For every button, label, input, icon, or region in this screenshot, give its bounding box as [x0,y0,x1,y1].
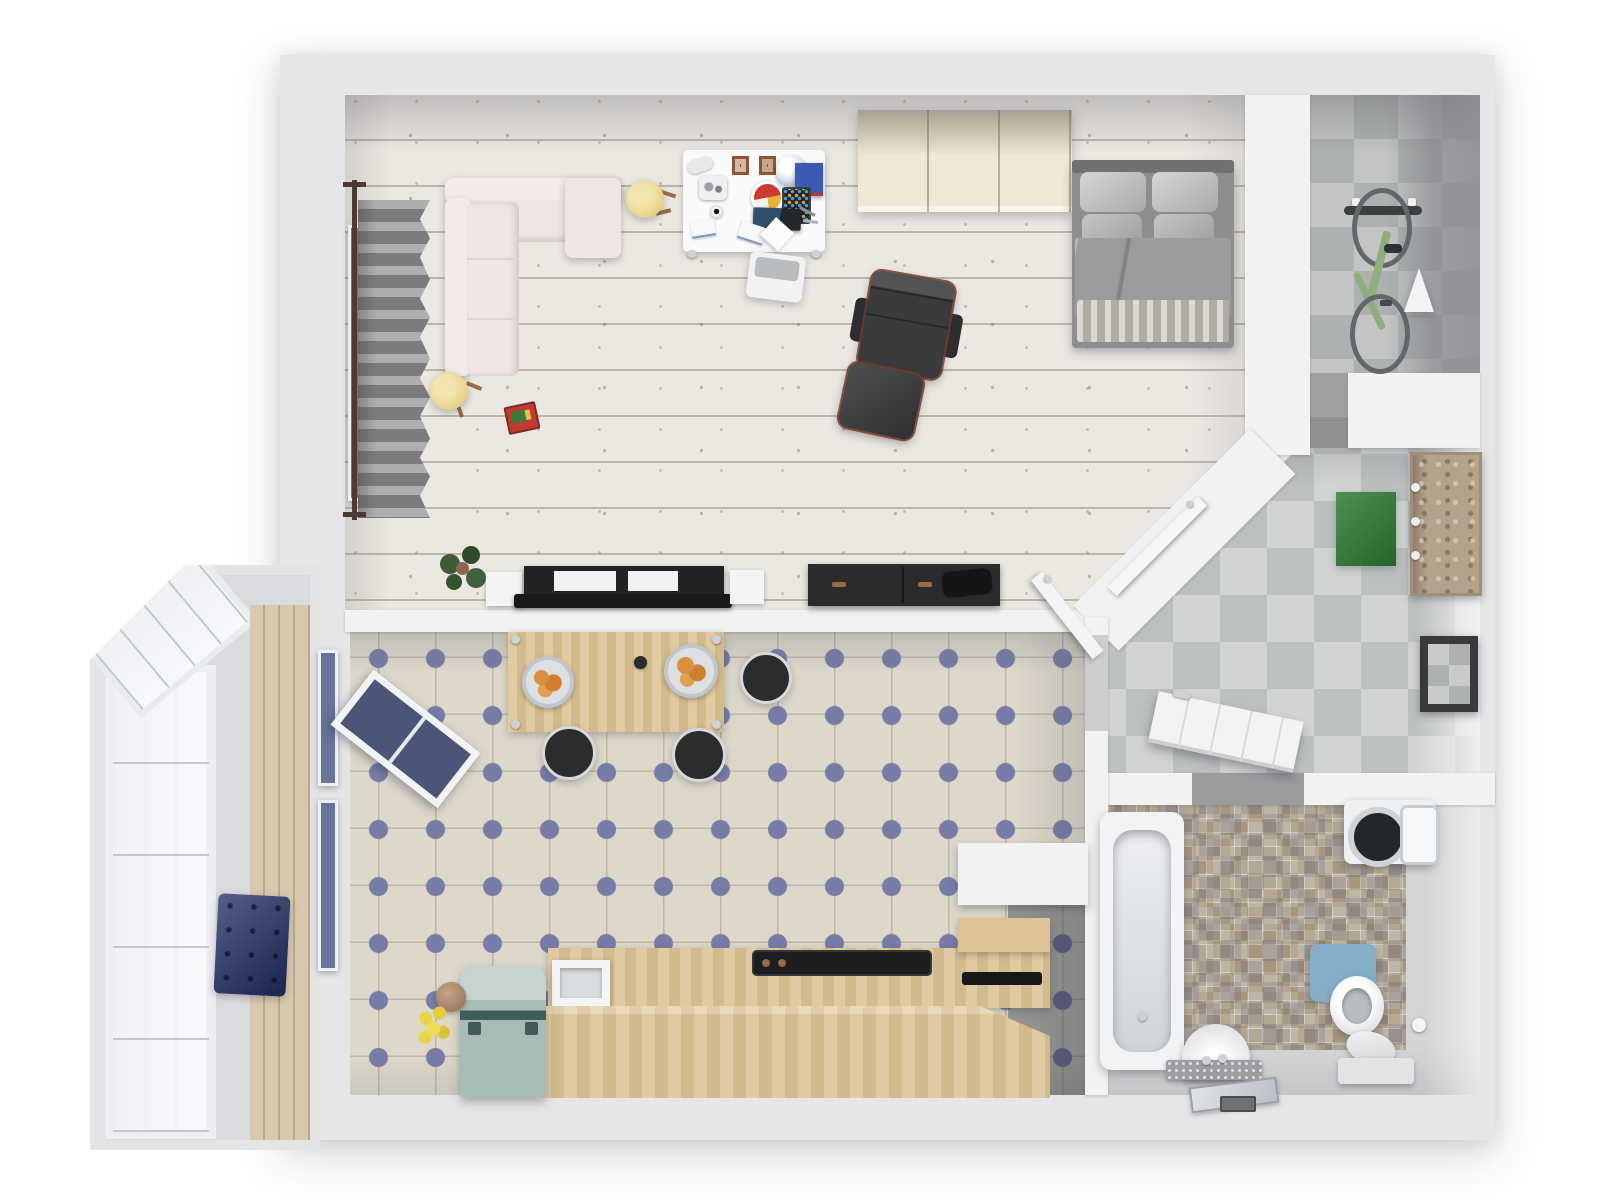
sofa-seam [515,202,517,242]
pedestal-sink [1178,1024,1278,1108]
curtain-rod [352,180,357,520]
dresser [808,564,1000,606]
bike-pedal [1380,300,1392,306]
desk-chair-seat [754,256,800,281]
speaker [730,570,764,604]
flower-vase [412,1000,458,1052]
wall-living-alcove [1245,95,1310,455]
table-leg [712,720,721,729]
dresser-handle [918,582,932,587]
sofa-seam [467,258,519,260]
double-bed [1072,160,1234,350]
sketch-paper [690,218,716,239]
balcony [90,565,320,1150]
coat-hook [1411,517,1420,526]
bed-pillow [1080,172,1146,212]
sofa-seam [467,318,519,320]
hall-mirror [1420,636,1478,712]
mug [710,205,723,218]
tray-item [1220,1096,1256,1112]
photo-frame [732,156,749,175]
curtain-rod-finial-bottom [343,512,366,517]
window-mullion [388,717,426,764]
tv-screen [514,594,732,608]
bathroom-doorway-gap [1192,773,1304,805]
counter-slot [962,972,1042,985]
desk-leg [811,250,821,258]
kitchen-island [538,1006,1050,1098]
photo-frame [759,156,776,175]
floor-plan-stage [0,0,1600,1200]
bed-pillow [1152,172,1218,212]
salt-shaker [634,656,647,669]
doormat [1336,492,1396,566]
corner-sofa [445,178,621,376]
plant-pot [456,562,469,575]
toilet-paper-holder [1412,1018,1426,1032]
bike-wall-hook [1408,198,1416,206]
tv-drawer [628,571,678,591]
balcony-wood-wall [250,605,310,1140]
coat-rack [1410,452,1482,596]
table-leg [511,635,520,644]
potted-plant [440,546,486,592]
sofa-seat-vertical [467,202,519,376]
game-box-inner [524,409,531,420]
washer-lid [1400,805,1439,865]
fruit-bowl [522,656,574,708]
balcony-window-wall [106,665,216,1139]
table-leg [511,720,520,729]
table-leg [712,635,721,644]
camera-icon [699,176,727,200]
dresser-handle [832,582,846,587]
desk-lamp-icon [685,154,714,175]
stool [740,652,792,704]
bike-saddle [1384,244,1402,253]
wardrobe [858,110,1072,212]
desk [683,150,825,252]
dresser-seam [902,567,904,603]
curtain-rod-finial-top [343,182,366,187]
sink-basin [560,968,602,998]
cooktop-knob [778,959,786,967]
pendant-lamp [1404,268,1434,312]
washer-door [1348,807,1408,867]
plant-leaf [446,574,462,590]
fridge-hinge [525,1022,538,1035]
desk-chair [745,251,806,303]
fridge-hinge [468,1022,481,1035]
pouf [430,372,468,410]
wall-living-kitchen [345,610,1108,632]
sink-tap [1218,1054,1227,1063]
counter-bar-return [958,918,1050,952]
dresser-item [941,567,993,598]
sink-ledge [1166,1060,1262,1080]
tv-drawer [554,571,616,591]
cooktop [752,950,932,976]
stool [672,728,726,782]
toilet [1326,968,1418,1088]
kitchen-wall-window-lower [318,800,338,971]
bike-rear-wheel [1350,294,1410,374]
fridge [460,966,546,1098]
pouf [626,180,664,218]
kitchen-sink [552,960,610,1006]
bathtub-drain [1138,1012,1147,1021]
toilet-base [1338,1058,1414,1084]
alcove-passage-floor [1310,373,1348,451]
wall-alcove-hall [1348,373,1480,448]
washing-machine [1344,800,1436,864]
sofa-chaise [565,178,621,258]
kitchen-nook-block [958,843,1088,905]
coat-hook [1411,551,1420,560]
coat-hook [1411,483,1420,492]
plant-leaf [466,568,486,588]
curtain [358,200,430,518]
desk-leg [687,250,697,258]
lounge-chair-body [856,269,956,380]
hall-mirror-glass [1428,644,1470,704]
bathtub [1100,812,1184,1070]
bed-blanket [1077,300,1229,342]
sink-tap [1202,1056,1211,1065]
stool [542,726,596,780]
fruit-bowl [664,644,718,698]
cooktop-knob [762,959,770,967]
balcony-bench [213,893,290,997]
toilet-bowl-inner [1342,988,1372,1024]
plant-leaf [462,546,480,564]
